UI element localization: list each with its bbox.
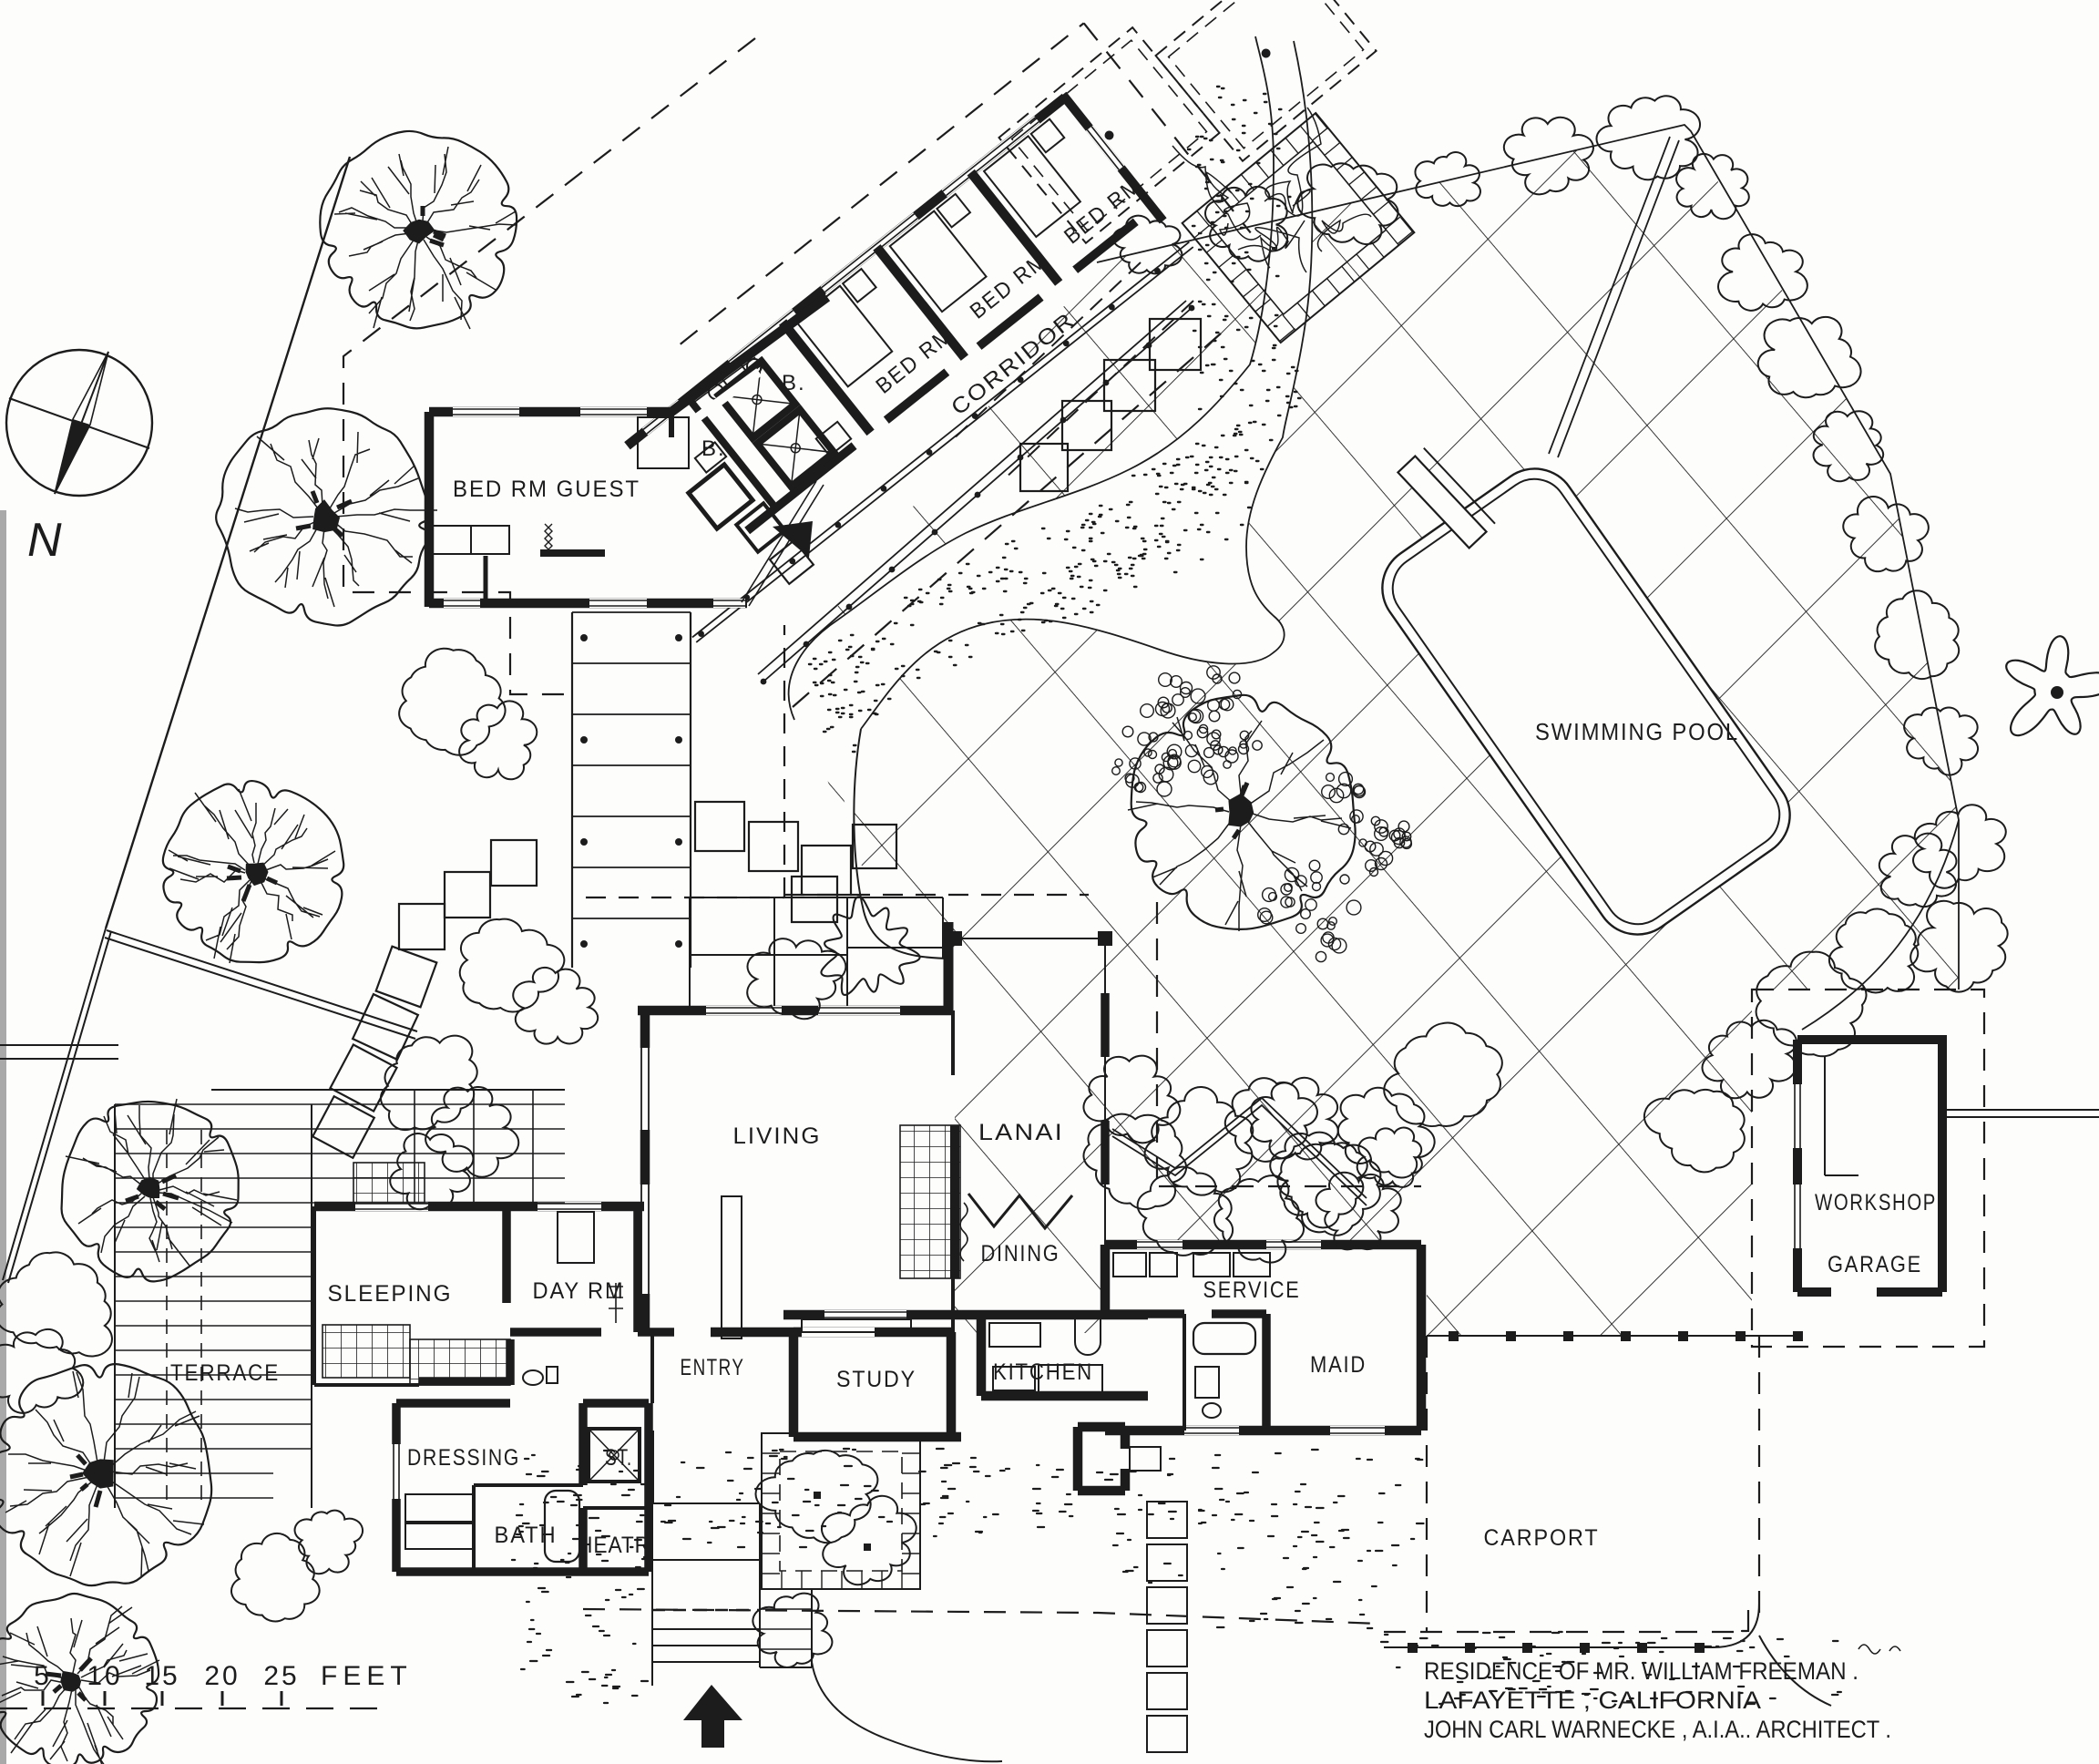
svg-text:LANAI: LANAI xyxy=(978,1120,1064,1145)
svg-text:20: 20 xyxy=(204,1661,240,1691)
svg-text:JOHN CARL WARNECKE , A.I.A..: JOHN CARL WARNECKE , A.I.A.. ARCHITECT . xyxy=(1424,1716,1891,1743)
svg-text:LAFAYETTE , CALIFORNIA: LAFAYETTE , CALIFORNIA xyxy=(1424,1687,1761,1714)
svg-text:B.: B. xyxy=(701,436,726,461)
svg-text:25: 25 xyxy=(263,1661,299,1691)
svg-text:CARPORT: CARPORT xyxy=(1484,1525,1600,1551)
svg-text:DAY RM: DAY RM xyxy=(533,1278,625,1304)
svg-text:N: N xyxy=(27,514,62,567)
svg-text:MAID: MAID xyxy=(1310,1352,1367,1378)
svg-text:BATH: BATH xyxy=(495,1523,558,1548)
svg-text:STUDY: STUDY xyxy=(836,1367,916,1392)
svg-text:DRESSING: DRESSING xyxy=(407,1445,520,1471)
svg-text:RESIDENCE OF MR. WILLIAM F: RESIDENCE OF MR. WILLIAM FREEMAN . xyxy=(1424,1657,1858,1685)
svg-text:GARAGE: GARAGE xyxy=(1828,1252,1922,1277)
svg-text:KITCHEN: KITCHEN xyxy=(993,1359,1093,1385)
svg-text:B.: B. xyxy=(782,371,806,395)
svg-text:ST.: ST. xyxy=(605,1445,632,1471)
svg-text:SWIMMING POOL: SWIMMING POOL xyxy=(1535,718,1739,745)
svg-text:10: 10 xyxy=(87,1661,122,1691)
svg-text:TERRACE: TERRACE xyxy=(170,1360,280,1386)
svg-text:LIVING: LIVING xyxy=(733,1123,822,1149)
svg-text:5: 5 xyxy=(34,1661,52,1691)
svg-text:ENTRY: ENTRY xyxy=(681,1355,745,1380)
svg-text:SLEEPING: SLEEPING xyxy=(328,1281,453,1307)
svg-text:SERVICE: SERVICE xyxy=(1203,1277,1301,1303)
svg-text:15: 15 xyxy=(144,1661,179,1691)
svg-text:BED RM GUEST: BED RM GUEST xyxy=(453,477,640,502)
svg-text:DINING: DINING xyxy=(981,1241,1060,1267)
svg-text:HEATR: HEATR xyxy=(578,1533,650,1558)
svg-text:WORKSHOP: WORKSHOP xyxy=(1815,1190,1937,1215)
svg-text:FEET: FEET xyxy=(321,1661,413,1691)
